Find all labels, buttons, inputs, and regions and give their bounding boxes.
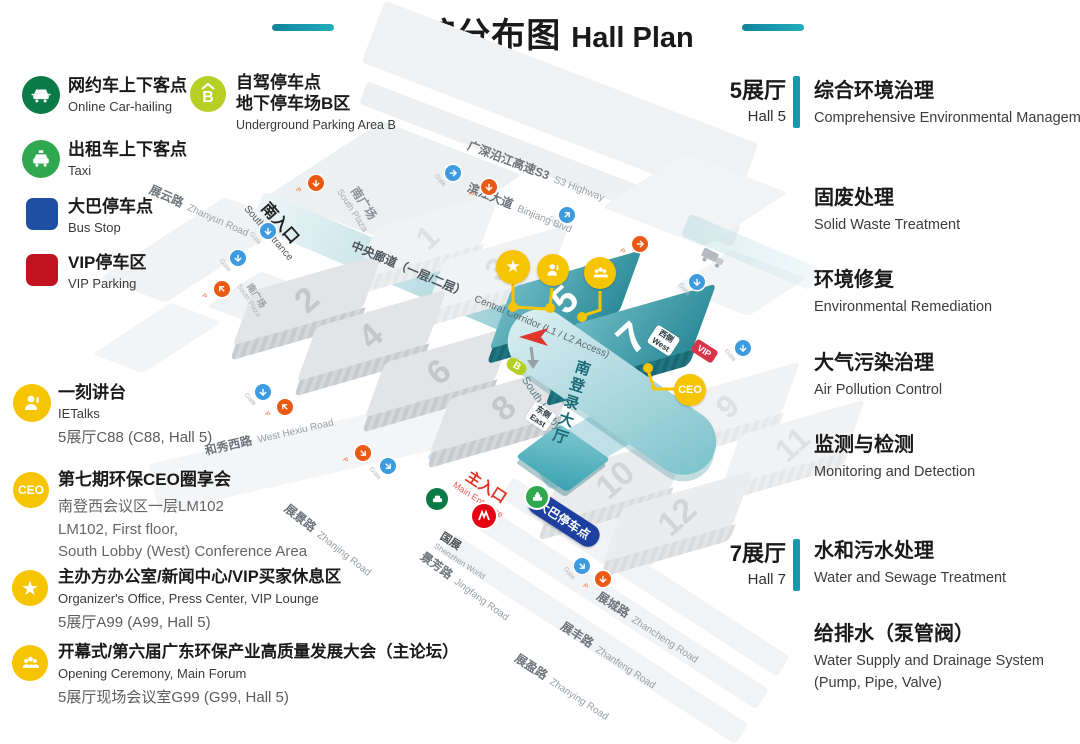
hall-7-panel-label: 7展厅 Hall 7 xyxy=(710,536,786,588)
hall-2-number: 2 xyxy=(287,279,327,321)
parking-marker-label: P xyxy=(263,411,271,419)
taxi-map-icon xyxy=(526,486,548,508)
parking-marker xyxy=(632,236,648,252)
hall-5-bar xyxy=(793,76,800,128)
vip-map-badge: VIP xyxy=(690,338,718,363)
hall-7-bar xyxy=(793,539,800,591)
gate-marker xyxy=(735,340,751,356)
gate-marker xyxy=(445,165,461,181)
parking-marker xyxy=(481,179,497,195)
legend-item-ceo: 第七期环保CEO圈享会 南登西会议区一层LM102 LM102, First f… xyxy=(58,469,307,560)
parking-b-icon: B xyxy=(190,76,226,112)
parking-marker xyxy=(595,571,611,587)
legend-item-taxi: 出租车上下客点 Taxi xyxy=(68,139,187,178)
hall-8-number: 8 xyxy=(484,387,524,429)
legend-item-car-hailing: 网约车上下客点 Online Car-hailing xyxy=(68,75,187,114)
legend-item-opening-ceremony: 开幕式/第六届广东环保产业高质量发展大会（主论坛） Opening Ceremo… xyxy=(58,642,459,707)
parking-marker xyxy=(308,175,324,191)
legend-item-organizer: 主办方办公室/新闻中心/VIP买家休息区 Organizer's Office,… xyxy=(58,567,341,632)
ceo-icon: CEO xyxy=(13,472,49,508)
legend-item-bus-stop: 大巴停车点 Bus Stop xyxy=(68,196,153,235)
gate-marker xyxy=(255,384,271,400)
hall-12-number: 12 xyxy=(650,490,704,544)
gate-marker xyxy=(260,223,276,239)
ietalks-icon xyxy=(13,384,51,422)
hall-6-number: 6 xyxy=(419,351,459,393)
legend-item-ietalks: 一刻讲台 IETalks 5展厅C88 (C88, Hall 5) xyxy=(58,382,212,447)
star-icon: ★ xyxy=(12,570,48,606)
legend-item-vip-parking: VIP停车区 VIP Parking xyxy=(68,252,146,291)
parking-marker xyxy=(355,445,371,461)
topic-solid-waste: 固废处理 Solid Waste Treatment xyxy=(814,181,1080,236)
hall-11-number: 11 xyxy=(768,419,818,469)
gate-marker xyxy=(559,207,575,223)
parking-marker xyxy=(214,281,230,297)
ground-block xyxy=(92,303,221,374)
car-hailing-icon xyxy=(22,76,60,114)
hall-5-panel-label: 5展厅 Hall 5 xyxy=(710,73,786,125)
gate-marker xyxy=(380,458,396,474)
hall-4-number: 4 xyxy=(351,315,391,357)
metro-logo-glyph xyxy=(477,509,491,523)
ietalks-map-marker xyxy=(537,254,569,286)
forum-icon xyxy=(12,645,48,681)
gate-marker xyxy=(689,274,705,290)
gate-marker xyxy=(574,558,590,574)
topic-water-supply: 给排水（泵管阀） Water Supply and Drainage Syste… xyxy=(814,617,1080,695)
forum-map-marker xyxy=(584,257,616,289)
gate-marker xyxy=(230,250,246,266)
topic-water-sewage: 水和污水处理 Water and Sewage Treatment xyxy=(814,534,1080,589)
hall-1-number: 1 xyxy=(409,217,447,256)
road-zhanying: 展盈路Zhanying Road xyxy=(511,649,613,724)
car-hailing-map-icon xyxy=(426,488,448,510)
parking-marker-label: P xyxy=(200,293,208,301)
topic-air-pollution: 大气污染治理 Air Pollution Control xyxy=(814,346,1080,401)
parking-marker xyxy=(277,399,293,415)
metro-station-icon xyxy=(472,504,496,528)
legend-item-parking-b: 自驾停车点 地下停车场B区 Underground Parking Area B xyxy=(236,72,396,132)
ceo-map-marker: CEO xyxy=(674,374,706,406)
bus-square-icon xyxy=(26,198,58,230)
taxi-icon xyxy=(22,140,60,178)
topic-comprehensive: 综合环境治理 Comprehensive Environmental Manag… xyxy=(814,74,1080,129)
topic-monitoring: 监测与检测 Monitoring and Detection xyxy=(814,428,1080,483)
hall-9-number: 9 xyxy=(709,386,747,425)
topic-remediation: 环境修复 Environmental Remediation xyxy=(814,263,1080,318)
vip-square-icon xyxy=(26,254,58,286)
star-map-marker: ★ xyxy=(496,250,530,284)
